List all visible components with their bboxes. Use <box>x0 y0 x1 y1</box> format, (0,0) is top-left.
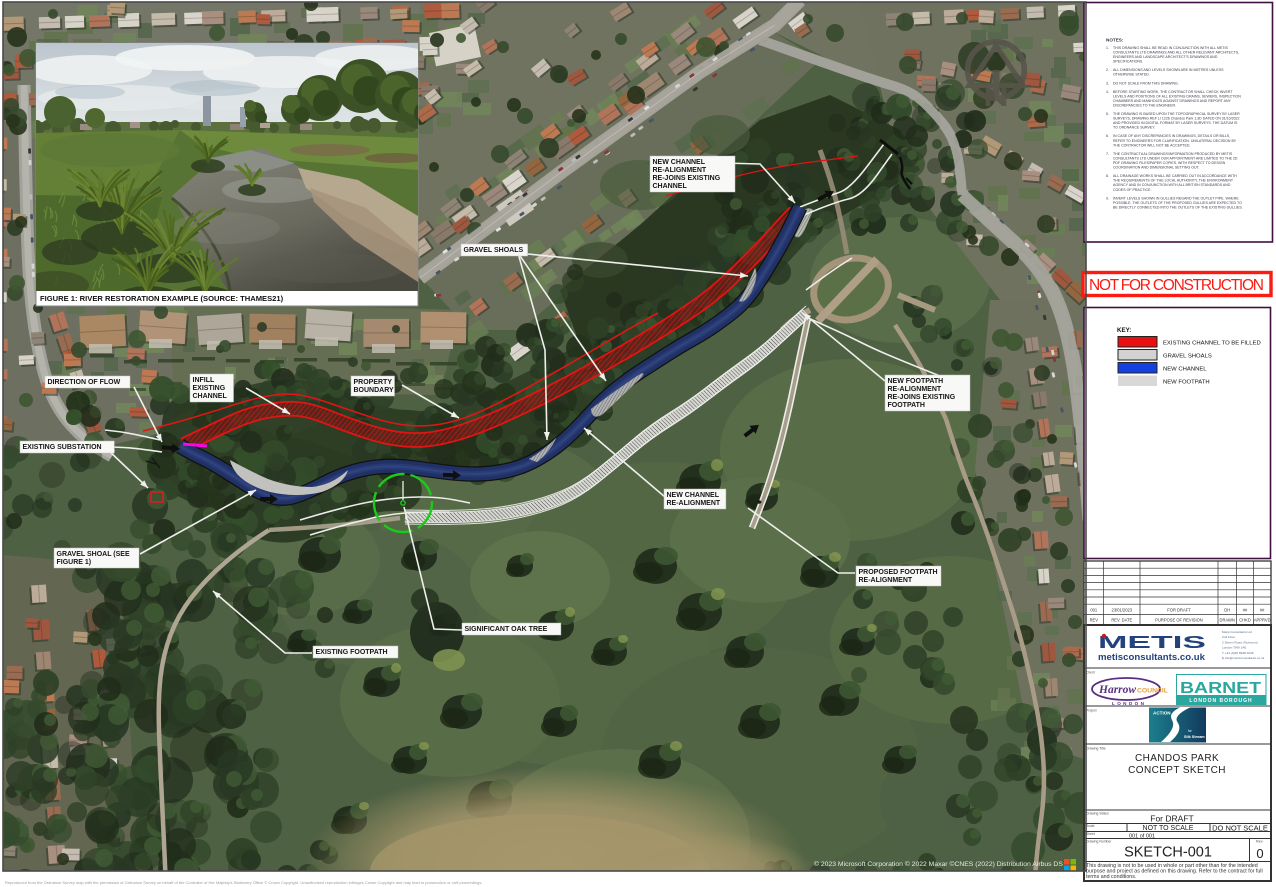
svg-text:GRAVEL SHOALS: GRAVEL SHOALS <box>1163 354 1212 360</box>
svg-text:Reproduced from the Ordnance S: Reproduced from the Ordnance Survey map … <box>5 880 482 885</box>
svg-text:ALL DIMENSIONS AND LEVELS SHOW: ALL DIMENSIONS AND LEVELS SHOWN ARE IN M… <box>1113 68 1224 72</box>
svg-text:APPRVD: APPRVD <box>1254 618 1271 623</box>
svg-text:REV: REV <box>1090 618 1099 623</box>
svg-text:THIS DRAWING SHALL BE READ IN: THIS DRAWING SHALL BE READ IN CONJUNCTIO… <box>1113 46 1229 50</box>
svg-text:DH: DH <box>1224 608 1230 613</box>
svg-text:2nd Floor: 2nd Floor <box>1222 635 1235 639</box>
svg-text:REV. DATE: REV. DATE <box>1111 618 1132 623</box>
svg-text:NEW FOOTPATH: NEW FOOTPATH <box>1163 380 1210 386</box>
svg-text:INVERT LEVELS SHOWN IN GULLIES: INVERT LEVELS SHOWN IN GULLIES REGARD TH… <box>1113 196 1239 200</box>
svg-text:NOT FOR CONSTRUCTION: NOT FOR CONSTRUCTION <box>1089 277 1264 294</box>
svg-text:COUNCIL: COUNCIL <box>1137 688 1168 695</box>
svg-text:DISCREPANCIES TO THE ENGINEER.: DISCREPANCIES TO THE ENGINEER. <box>1113 104 1176 108</box>
svg-text:AGENCY AND IN CONJUNCTION WITH: AGENCY AND IN CONJUNCTION WITH ALL BRITI… <box>1113 183 1231 187</box>
svg-text:BEFORE STARTING WORK, THE CONT: BEFORE STARTING WORK, THE CONTRACTOR SHA… <box>1113 90 1233 94</box>
svg-text:BARNET: BARNET <box>1180 680 1262 697</box>
svg-text:23/01/2023: 23/01/2023 <box>1112 608 1133 613</box>
svg-text:POSSIBLE, THE OUTLETS OF THE P: POSSIBLE, THE OUTLETS OF THE PROPOSED GU… <box>1113 201 1242 205</box>
svg-text:Rev: Rev <box>1256 840 1263 844</box>
svg-text:Scale: Scale <box>1086 824 1095 828</box>
svg-text:5.: 5. <box>1106 112 1109 116</box>
svg-text:PURPOSE OF REVISION: PURPOSE OF REVISION <box>1155 618 1203 623</box>
svg-text:001 of 001: 001 of 001 <box>1129 834 1155 840</box>
svg-text:CODES OF PRACTICE.: CODES OF PRACTICE. <box>1113 188 1151 192</box>
svg-text:PDF DRAWING FILES/PAPER COPIES: PDF DRAWING FILES/PAPER COPIES, WITH RES… <box>1113 161 1226 165</box>
svg-text:Silk Stream: Silk Stream <box>1184 735 1205 739</box>
svg-text:IN CASE OF ANY DISCREPANCIES I: IN CASE OF ANY DISCREPANCIES IN DRAWINGS… <box>1113 134 1230 138</box>
svg-text:CHKD: CHKD <box>1239 618 1251 623</box>
svg-text:REFER TO ENGINEERS FOR CLARIFI: REFER TO ENGINEERS FOR CLARIFICATION. UN… <box>1113 139 1237 143</box>
svg-text:##: ## <box>1260 608 1265 613</box>
svg-text:TO ORDNANCE SURVEY.: TO ORDNANCE SURVEY. <box>1113 126 1155 130</box>
svg-text:LONDON BOROUGH: LONDON BOROUGH <box>1189 698 1252 704</box>
svg-text:Client: Client <box>1086 671 1095 675</box>
svg-text:Project: Project <box>1086 709 1097 713</box>
svg-text:THE CONTRACTUAL DRAWINGS/INFOR: THE CONTRACTUAL DRAWINGS/INFORMATION PRO… <box>1113 152 1233 156</box>
svg-text:ACTION: ACTION <box>1153 711 1171 716</box>
svg-text:FIGURE 1: RIVER RESTORATION EX: FIGURE 1: RIVER RESTORATION EXAMPLE (SOU… <box>40 294 284 303</box>
svg-text:COORDINATION AND DIMENSIONAL S: COORDINATION AND DIMENSIONAL SETTING OUT… <box>1113 166 1200 170</box>
svg-text:DRAWN: DRAWN <box>1220 618 1235 623</box>
svg-text:EXISTING CHANNEL TO BE FILLED: EXISTING CHANNEL TO BE FILLED <box>1163 341 1261 347</box>
svg-text:For DRAFT: For DRAFT <box>1150 814 1193 824</box>
svg-text:METIS: METIS <box>1098 632 1206 652</box>
svg-text:Metis Consultants Ltd: Metis Consultants Ltd <box>1222 630 1252 634</box>
svg-text:CHAMBERS AND MANHOLES AGAINST: CHAMBERS AND MANHOLES AGAINST DRAWINGS A… <box>1113 99 1232 103</box>
svg-text:4.: 4. <box>1106 90 1109 94</box>
svg-text:Drawing Status: Drawing Status <box>1086 812 1109 816</box>
svg-text:2 Sheen Road, Richmond: 2 Sheen Road, Richmond <box>1222 640 1258 644</box>
svg-text:ALL DRAINAGE WORKS SHALL BE CA: ALL DRAINAGE WORKS SHALL BE CARRIED OUT … <box>1113 174 1237 178</box>
svg-text:OTHERWISE STATED.: OTHERWISE STATED. <box>1113 73 1150 77</box>
svg-text:CONSULTANTS LTD DRAWINGS AND A: CONSULTANTS LTD DRAWINGS AND ALL OTHER R… <box>1113 51 1239 55</box>
svg-text:metisconsultants.co.uk: metisconsultants.co.uk <box>1098 652 1206 663</box>
svg-text:DO NOT SCALE: DO NOT SCALE <box>1212 824 1268 833</box>
svg-text:CONSULTANTS LTD UNDER OUR APPO: CONSULTANTS LTD UNDER OUR APPOINTMENT AR… <box>1113 157 1238 161</box>
svg-text:SKETCH-001: SKETCH-001 <box>1124 845 1212 861</box>
svg-text:001: 001 <box>1090 608 1098 613</box>
svg-text:NOTES:: NOTES: <box>1106 38 1124 43</box>
svg-text:T +44 (0)20 8948 0249: T +44 (0)20 8948 0249 <box>1222 651 1254 655</box>
svg-text:NOT TO SCALE: NOT TO SCALE <box>1143 825 1194 832</box>
svg-text:Harrow: Harrow <box>1098 684 1136 696</box>
svg-text:LONDON: LONDON <box>1112 701 1146 706</box>
svg-text:LEVELS AND POSITIONS OF ALL EX: LEVELS AND POSITIONS OF ALL EXISTING DRA… <box>1113 94 1241 98</box>
svg-text:2.: 2. <box>1106 68 1109 72</box>
svg-text:9.: 9. <box>1106 196 1109 200</box>
svg-text:AND PROVIDED IN DIGITAL FORMAT: AND PROVIDED IN DIGITAL FORMAT BY LASER … <box>1113 121 1238 125</box>
svg-text:THE CONTRACTOR WILL NOT BE ACC: THE CONTRACTOR WILL NOT BE ACCEPTED. <box>1113 143 1190 147</box>
svg-text:London TW9 1AE: London TW9 1AE <box>1222 646 1246 650</box>
svg-text:KEY:: KEY: <box>1117 327 1131 334</box>
svg-text:CONCEPT SKETCH: CONCEPT SKETCH <box>1128 765 1226 776</box>
svg-text:NEW CHANNEL: NEW CHANNEL <box>1163 367 1207 373</box>
svg-text:CHANDOS PARK: CHANDOS PARK <box>1135 753 1219 764</box>
svg-text:8.: 8. <box>1106 174 1109 178</box>
svg-text:SURVEYS, DRAWING REF LI 1226 C: SURVEYS, DRAWING REF LI 1226 Chandos Par… <box>1113 117 1240 121</box>
svg-text:terms and conditions.: terms and conditions. <box>1086 874 1136 880</box>
svg-text:ENGINEERS AND LANDSCAPE ARCHIT: ENGINEERS AND LANDSCAPE ARCHITECT'S DRAW… <box>1113 55 1218 59</box>
svg-text:THE REQUIREMENTS OF THE LOCAL: THE REQUIREMENTS OF THE LOCAL AUTHORITY,… <box>1113 179 1234 183</box>
svg-text:Drawing Number: Drawing Number <box>1086 840 1112 844</box>
svg-text:E info@metisconsultants.co.uk: E info@metisconsultants.co.uk <box>1222 656 1265 660</box>
svg-text:7.: 7. <box>1106 152 1109 156</box>
svg-text:FOR DRAFT: FOR DRAFT <box>1167 608 1191 613</box>
svg-text:THE DRAWING IS BASED UPON THE: THE DRAWING IS BASED UPON THE TOPOGRAPHI… <box>1113 112 1240 116</box>
svg-text:Sheet: Sheet <box>1086 832 1095 836</box>
svg-text:DO NOT SCALE FROM THIS DRAWING: DO NOT SCALE FROM THIS DRAWING. <box>1113 81 1179 85</box>
svg-text:##: ## <box>1243 608 1248 613</box>
svg-text:BE DIRECTLY CONNECTED INTO THE: BE DIRECTLY CONNECTED INTO THE OUTLETS O… <box>1113 205 1243 209</box>
svg-text:Drawing Title: Drawing Title <box>1086 747 1106 751</box>
svg-text:0: 0 <box>1256 846 1263 861</box>
svg-text:3.: 3. <box>1106 81 1109 85</box>
svg-text:1.: 1. <box>1106 46 1109 50</box>
svg-text:SPECIFICATIONS.: SPECIFICATIONS. <box>1113 60 1143 64</box>
svg-text:6.: 6. <box>1106 134 1109 138</box>
